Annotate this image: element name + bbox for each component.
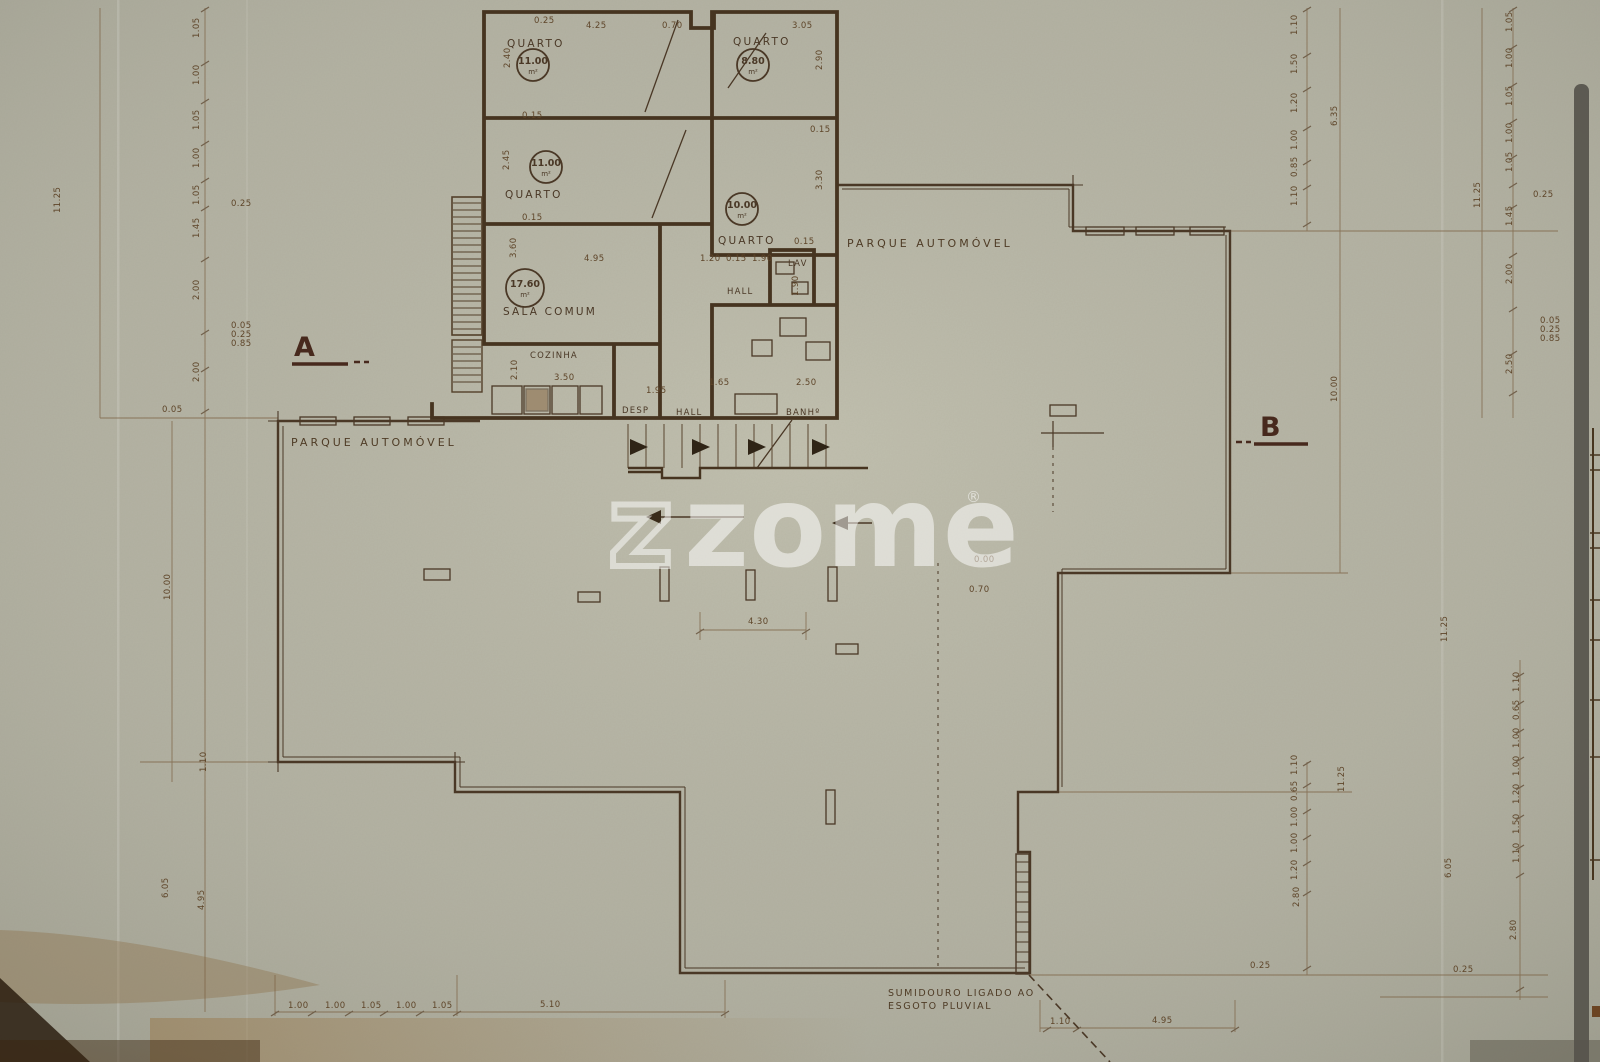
dimension-label: 11.25 xyxy=(1337,766,1347,792)
dimension-label: 1.00 xyxy=(1512,727,1522,748)
dimension-label: 2.80 xyxy=(1292,886,1302,907)
dimension-label: 1.00 xyxy=(1505,122,1515,143)
scrollbar-thumb[interactable] xyxy=(1574,84,1589,1062)
zome-wordmark: zome xyxy=(684,463,1019,593)
room-label-hall-upper: HALL xyxy=(727,287,753,297)
dimension-label: 6.35 xyxy=(1330,105,1340,126)
dimension-label: 1.05 xyxy=(432,1001,453,1011)
dimension-label: 1.45 xyxy=(1505,205,1515,226)
room-label-banho: BANHº xyxy=(786,408,820,418)
dimension-label: 5.10 xyxy=(540,1000,561,1010)
sumidouro-note-line2: ESGOTO PLUVIAL xyxy=(888,1001,992,1012)
dimension-label: 1.05 xyxy=(192,109,202,130)
section-a-letter: A xyxy=(294,332,315,363)
room-unit-sala: m² xyxy=(520,291,530,299)
dimension-label: 1.00 xyxy=(325,1001,346,1011)
dimension-label: 2.00 xyxy=(192,279,202,300)
dimension-label: 0.15 xyxy=(794,237,815,247)
room-area-quarto1: 11.00 xyxy=(518,56,548,67)
dimension-label: 6.05 xyxy=(161,877,171,898)
dimension-label: 0.25 xyxy=(1453,965,1474,975)
floor-plan-svg: QUARTO 11.00 m² QUARTO 8.80 m² QUARTO 11… xyxy=(0,0,1600,1062)
room-area-quarto4: 10.00 xyxy=(727,200,757,211)
dimension-label: 1.00 xyxy=(192,64,202,85)
dimension-label: 10.00 xyxy=(163,574,173,600)
dimension-label: 4.30 xyxy=(748,617,769,627)
room-area-quarto2: 8.80 xyxy=(741,56,765,67)
dimension-label: 1.00 xyxy=(1512,755,1522,776)
dimension-label: 1.00 xyxy=(396,1001,417,1011)
dimension-label: 1.95 xyxy=(646,386,667,396)
dimension-label: 2.45 xyxy=(502,149,512,170)
dimension-label: 1.05 xyxy=(1505,85,1515,106)
room-label-desp: DESP xyxy=(622,406,649,416)
dimension-label: 1.05 xyxy=(361,1001,382,1011)
dimension-label: 11.25 xyxy=(1440,616,1450,642)
dimension-label: 3.50 xyxy=(554,373,575,383)
dimension-label: 1.50 xyxy=(1290,53,1300,74)
room-unit-quarto1: m² xyxy=(528,68,538,76)
dimension-label: 1.00 xyxy=(1505,47,1515,68)
dimension-label: 1.10 xyxy=(1512,842,1522,863)
dimension-label: 3.30 xyxy=(815,169,825,190)
room-area-quarto3: 11.00 xyxy=(531,158,561,169)
dimension-label: 2.50 xyxy=(796,378,817,388)
dimension-label: 1.00 xyxy=(288,1001,309,1011)
dimension-label: 0.85 xyxy=(1540,334,1561,344)
room-label-quarto1: QUARTO xyxy=(507,38,565,50)
room-label-hall-lower: HALL xyxy=(676,408,702,418)
dimension-label: 1.10 xyxy=(1050,1017,1071,1027)
sumidouro-note-line1: SUMIDOURO LIGADO AO xyxy=(888,988,1035,999)
dimension-label: 1.00 xyxy=(1290,832,1300,853)
dimension-label: 1.45 xyxy=(192,217,202,238)
dimension-label: 1.20 xyxy=(1290,92,1300,113)
room-label-quarto3: QUARTO xyxy=(505,189,563,201)
room-unit-quarto2: m² xyxy=(748,68,758,76)
dimension-label: 0.85 xyxy=(1290,156,1300,177)
dimension-label: 2.50 xyxy=(1505,353,1515,374)
room-label-quarto4: QUARTO xyxy=(718,235,776,247)
dimension-label: 1.20 xyxy=(1290,859,1300,880)
parque-automovel-right-label: PARQUE AUTOMÓVEL xyxy=(847,237,1013,250)
dimension-label: 1.65 xyxy=(709,378,730,388)
dimension-label: 0.25 xyxy=(1250,961,1271,971)
dimension-label: 10.00 xyxy=(1330,376,1340,402)
dimension-label: 0.25 xyxy=(231,199,252,209)
dimension-label: 0.05 xyxy=(162,405,183,415)
room-label-sala: SALA COMUM xyxy=(503,306,597,318)
dimension-label: 3.60 xyxy=(509,237,519,258)
dimension-label: 0.65 xyxy=(1290,780,1300,801)
room-label-quarto2: QUARTO xyxy=(733,36,791,48)
dimension-label: 2.40 xyxy=(503,47,513,68)
dimension-label: 1.05 xyxy=(192,17,202,38)
dimension-label: 0.15 xyxy=(810,125,831,135)
dimension-label: 6.05 xyxy=(1444,857,1454,878)
dimension-label: 1.50 xyxy=(1512,813,1522,834)
dimension-label: 1.90 xyxy=(752,254,773,264)
dimension-label: 3.05 xyxy=(792,21,813,31)
dimension-label: 4.95 xyxy=(1152,1016,1173,1026)
dimension-label: 4.95 xyxy=(584,254,605,264)
dimension-label: 1.05 xyxy=(192,184,202,205)
room-unit-quarto4: m² xyxy=(737,212,747,220)
dimension-label: 1.10 xyxy=(1290,185,1300,206)
dimension-label: 11.25 xyxy=(1473,182,1483,208)
dimension-label: 11.25 xyxy=(53,187,63,213)
dimension-label: 1.10 xyxy=(199,751,209,772)
room-unit-quarto3: m² xyxy=(541,170,551,178)
dimension-label: 0.15 xyxy=(522,213,543,223)
scanned-blueprint-page: QUARTO 11.00 m² QUARTO 8.80 m² QUARTO 11… xyxy=(0,0,1600,1062)
section-b-letter: B xyxy=(1260,412,1281,443)
dimension-label: 1.20 xyxy=(1512,783,1522,804)
registered-mark-icon: ® xyxy=(966,488,981,506)
dimension-label: 2.90 xyxy=(815,49,825,70)
dimension-label: 4.95 xyxy=(197,889,207,910)
dimension-label: 1.10 xyxy=(1290,14,1300,35)
parque-automovel-left-label: PARQUE AUTOMÓVEL xyxy=(291,436,457,449)
dimension-label: 1.00 xyxy=(1290,129,1300,150)
room-area-sala: 17.60 xyxy=(510,279,540,290)
room-label-lav: LAV xyxy=(788,259,808,269)
dimension-label: 2.00 xyxy=(192,361,202,382)
dimension-label: 1.00 xyxy=(192,147,202,168)
dimension-label: 0.15 xyxy=(522,111,543,121)
dimension-label: 0.65 xyxy=(1512,699,1522,720)
zome-z-outline: z xyxy=(608,463,673,593)
dimension-label: 1.05 xyxy=(1505,11,1515,32)
dimension-label: 2.10 xyxy=(510,359,520,380)
zome-watermark: z zome ® xyxy=(608,463,1019,593)
room-label-cozinha: COZINHA xyxy=(530,351,578,361)
dimension-label: 4.25 xyxy=(586,21,607,31)
dimension-label: 1.10 xyxy=(1290,754,1300,775)
dimension-label: 1.00 xyxy=(1290,806,1300,827)
dimension-label: 0.85 xyxy=(231,339,252,349)
dimension-label: 0.25 xyxy=(534,16,555,26)
dimension-label: 2.80 xyxy=(1509,919,1519,940)
dimension-label: 1.20 xyxy=(700,254,721,264)
dimension-label: 1.10 xyxy=(1512,671,1522,692)
dimension-label: 0.15 xyxy=(726,254,747,264)
dimension-label: 1.90 xyxy=(791,275,801,296)
dimension-label: 0.25 xyxy=(1533,190,1554,200)
dimension-label: 0.70 xyxy=(662,21,683,31)
dimension-label: 1.05 xyxy=(1505,151,1515,172)
dimension-label: 2.00 xyxy=(1505,263,1515,284)
